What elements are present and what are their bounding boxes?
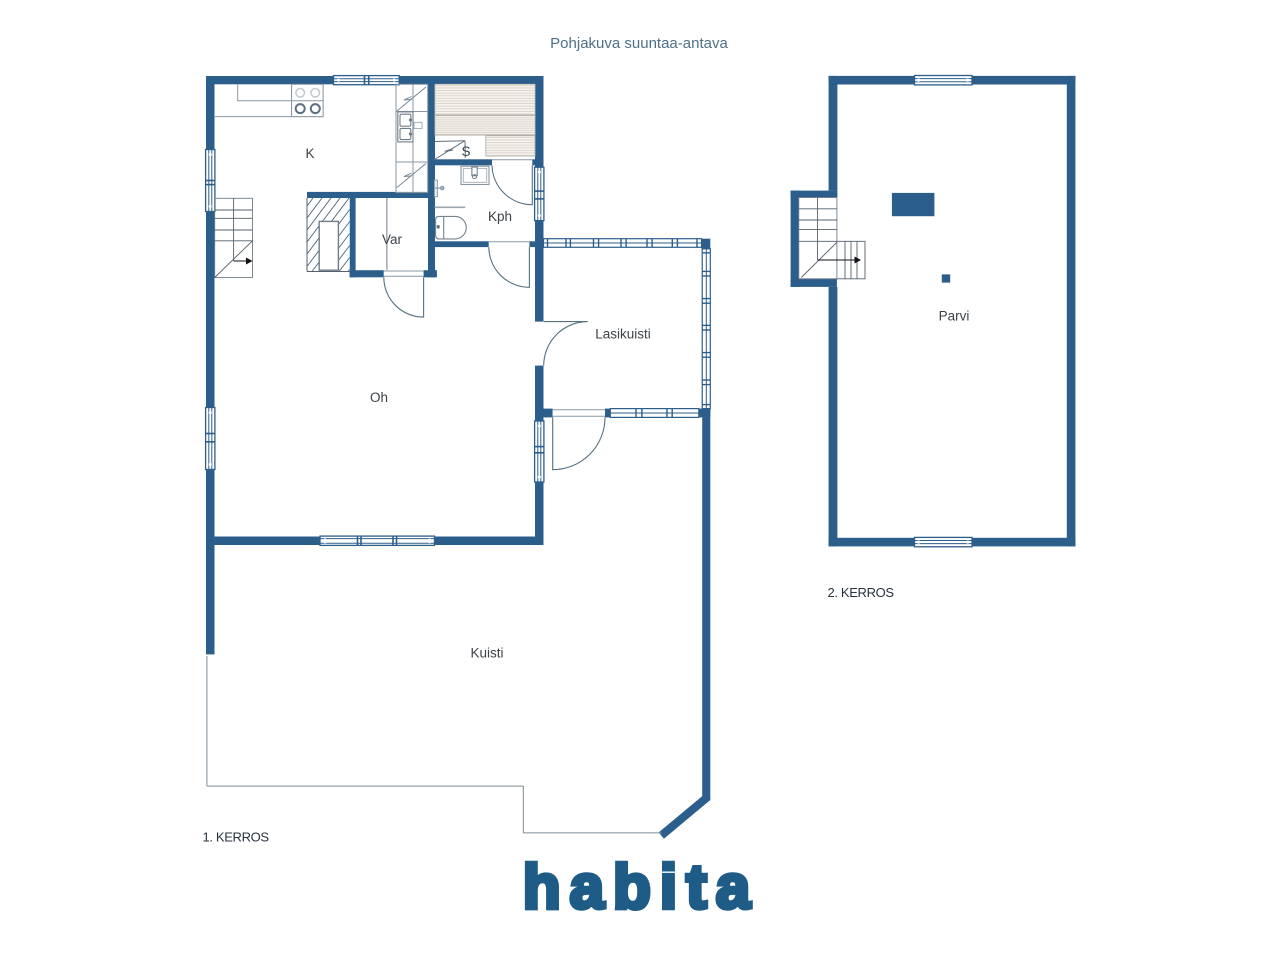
svg-text:1. KERROS: 1. KERROS (203, 830, 270, 845)
svg-text:Lasikuisti: Lasikuisti (595, 327, 651, 342)
svg-text:Kph: Kph (488, 209, 512, 224)
svg-text:Parvi: Parvi (939, 309, 970, 324)
svg-text:S: S (461, 144, 470, 159)
svg-text:Var: Var (382, 232, 403, 247)
svg-text:Pohjakuva suuntaa-antava: Pohjakuva suuntaa-antava (550, 35, 728, 52)
svg-text:K: K (305, 146, 314, 161)
svg-text:2. KERROS: 2. KERROS (828, 585, 895, 600)
svg-text:Oh: Oh (370, 390, 388, 405)
svg-text:habita: habita (523, 853, 760, 922)
svg-text:Kuisti: Kuisti (470, 646, 503, 661)
